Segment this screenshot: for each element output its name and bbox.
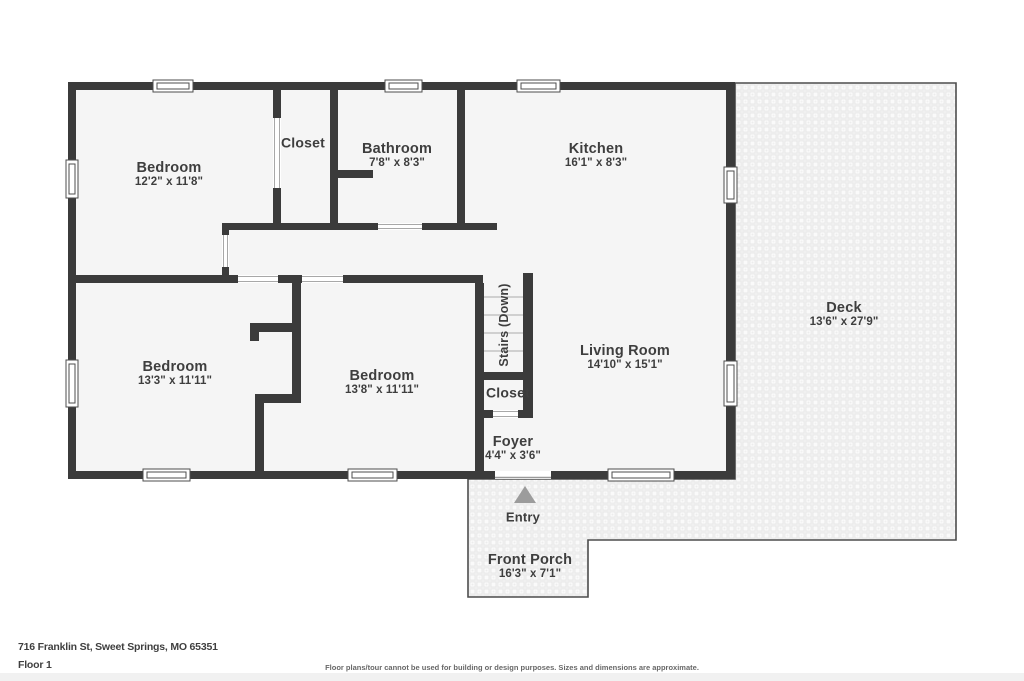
room-dims: 16'1" x 8'3" xyxy=(565,157,627,171)
room-dims: 14'10" x 15'1" xyxy=(580,359,670,373)
room-label-bedroom-3: Bedroom 13'8" x 11'11" xyxy=(345,369,419,398)
room-name: Closet xyxy=(281,136,325,151)
disclaimer-text: Floor plans/tour cannot be used for buil… xyxy=(325,663,699,672)
room-name: Foyer xyxy=(485,435,541,450)
room-label-bedroom-2: Bedroom 13'3" x 11'11" xyxy=(138,360,212,389)
room-name: Living Room xyxy=(580,344,670,359)
floor-label: Floor 1 xyxy=(18,659,52,671)
room-name: Bedroom xyxy=(135,161,203,176)
room-name: Entry xyxy=(506,510,540,525)
room-dims: 13'3" x 11'11" xyxy=(138,375,212,389)
room-name: Closet xyxy=(486,386,530,401)
bedroom2-door-opening-icon xyxy=(238,275,278,283)
room-name: Deck xyxy=(810,301,879,316)
living-room-bottom-window-icon xyxy=(608,469,674,481)
room-dims: 16'3" x 7'1" xyxy=(488,568,572,582)
bedroom2-left-window-icon xyxy=(66,360,78,407)
room-label-foyer: Foyer 4'4" x 3'6" xyxy=(485,435,541,464)
room-name: Bathroom xyxy=(362,142,432,157)
room-label-bedroom-1: Bedroom 12'2" x 11'8" xyxy=(135,161,203,190)
bedroom3-door-opening-icon xyxy=(302,275,343,283)
closet2-door-opening-icon xyxy=(493,410,518,418)
kitchen-top-window-icon xyxy=(517,80,560,92)
room-dims: 12'2" x 11'8" xyxy=(135,176,203,190)
room-name: Kitchen xyxy=(565,142,627,157)
bedroom3-bottom-window-icon xyxy=(348,469,397,481)
room-label-entry: Entry xyxy=(506,510,540,525)
bedroom1-left-window-icon xyxy=(66,160,78,198)
room-label-closet-1: Closet xyxy=(281,136,325,151)
room-dims: 7'8" x 8'3" xyxy=(362,157,432,171)
floor-plan-page: Bedroom 12'2" x 11'8" Closet Bathroom 7'… xyxy=(0,0,1024,681)
room-name: Bedroom xyxy=(138,360,212,375)
kitchen-deck-door-icon xyxy=(724,167,737,203)
entry-door-opening-icon xyxy=(495,471,551,479)
bottom-bar xyxy=(0,673,1024,681)
room-dims: 13'6" x 27'9" xyxy=(810,316,879,330)
room-label-bathroom: Bathroom 7'8" x 8'3" xyxy=(362,142,432,171)
room-label-stairs: Stairs (Down) xyxy=(497,283,511,366)
bedroom1-top-window-icon xyxy=(153,80,193,92)
room-name: Bedroom xyxy=(345,369,419,384)
bedroom1-door-opening-icon xyxy=(222,235,229,267)
closet1-door-opening-icon xyxy=(273,118,281,188)
room-name: Front Porch xyxy=(488,553,572,568)
room-label-front-porch: Front Porch 16'3" x 7'1" xyxy=(488,553,572,582)
room-label-kitchen: Kitchen 16'1" x 8'3" xyxy=(565,142,627,171)
room-dims: 13'8" x 11'11" xyxy=(345,384,419,398)
bedroom2-bottom-window-icon xyxy=(143,469,190,481)
room-label-living-room: Living Room 14'10" x 15'1" xyxy=(580,344,670,373)
living-room-deck-door-icon xyxy=(724,361,737,406)
room-dims: 4'4" x 3'6" xyxy=(485,450,541,464)
bathroom-door-opening-icon xyxy=(378,223,422,230)
property-address: 716 Franklin St, Sweet Springs, MO 65351 xyxy=(18,641,218,653)
room-name: Stairs (Down) xyxy=(497,283,511,366)
room-label-deck: Deck 13'6" x 27'9" xyxy=(810,301,879,330)
room-label-closet-2: Closet xyxy=(486,386,530,401)
bathroom-top-window-icon xyxy=(385,80,422,92)
